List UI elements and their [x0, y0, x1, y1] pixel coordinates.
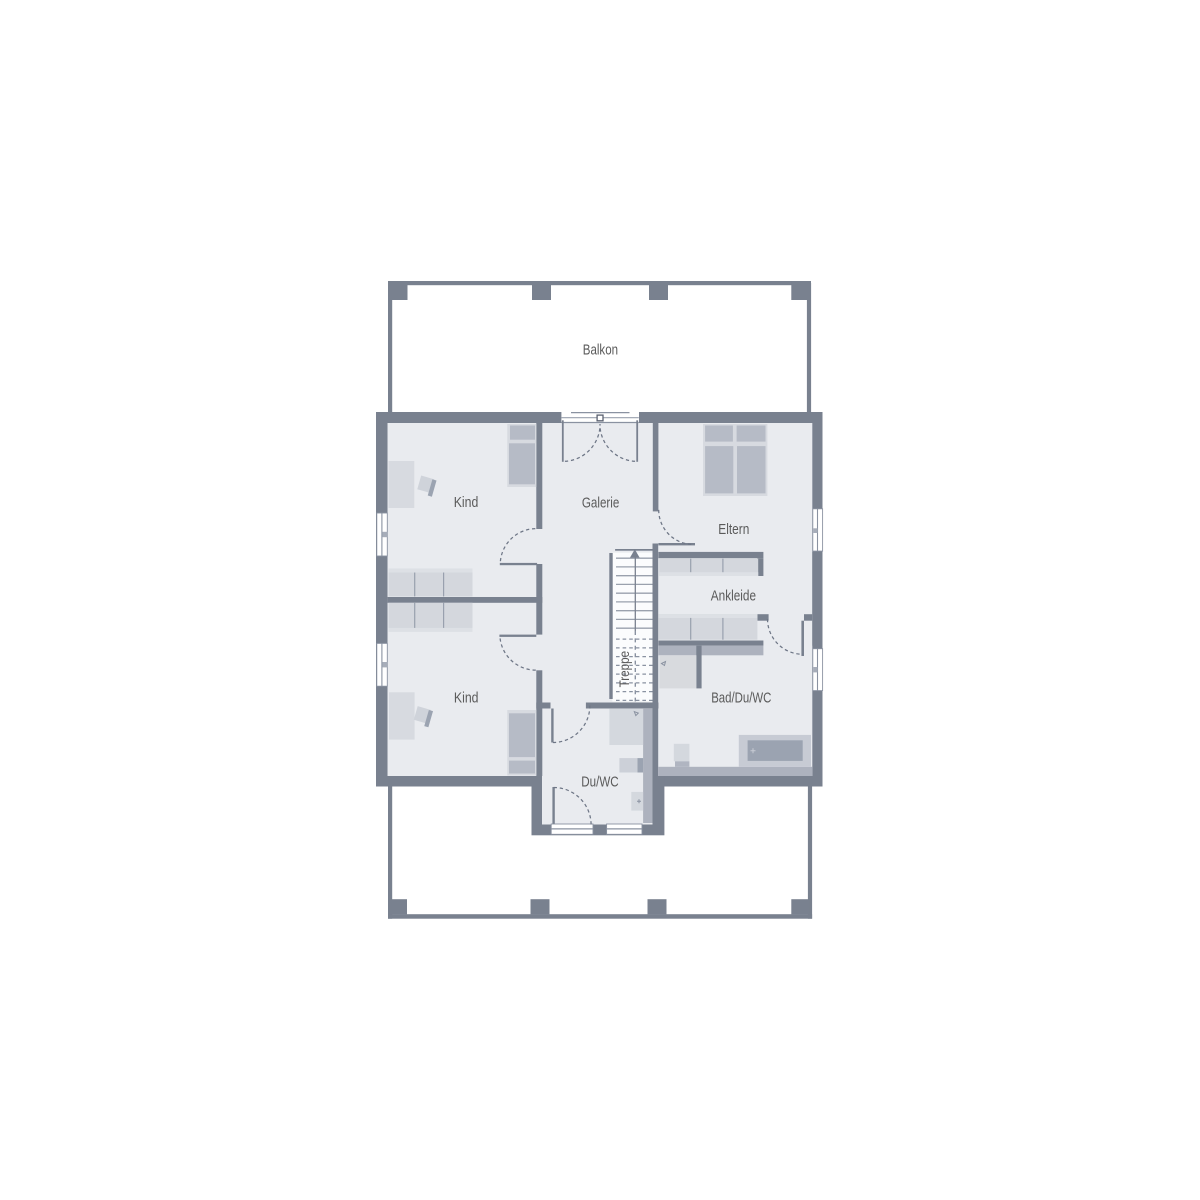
svg-text:Bad/Du/WC: Bad/Du/WC [711, 690, 771, 707]
svg-text:Kind: Kind [454, 494, 479, 511]
svg-text:Galerie: Galerie [582, 494, 620, 511]
svg-text:Eltern: Eltern [718, 521, 749, 538]
svg-text:Ankleide: Ankleide [711, 588, 756, 605]
svg-text:Kind: Kind [454, 689, 479, 706]
svg-text:Treppe: Treppe [617, 651, 632, 688]
svg-text:Balkon: Balkon [583, 341, 618, 358]
svg-text:Du/WC: Du/WC [581, 773, 619, 790]
